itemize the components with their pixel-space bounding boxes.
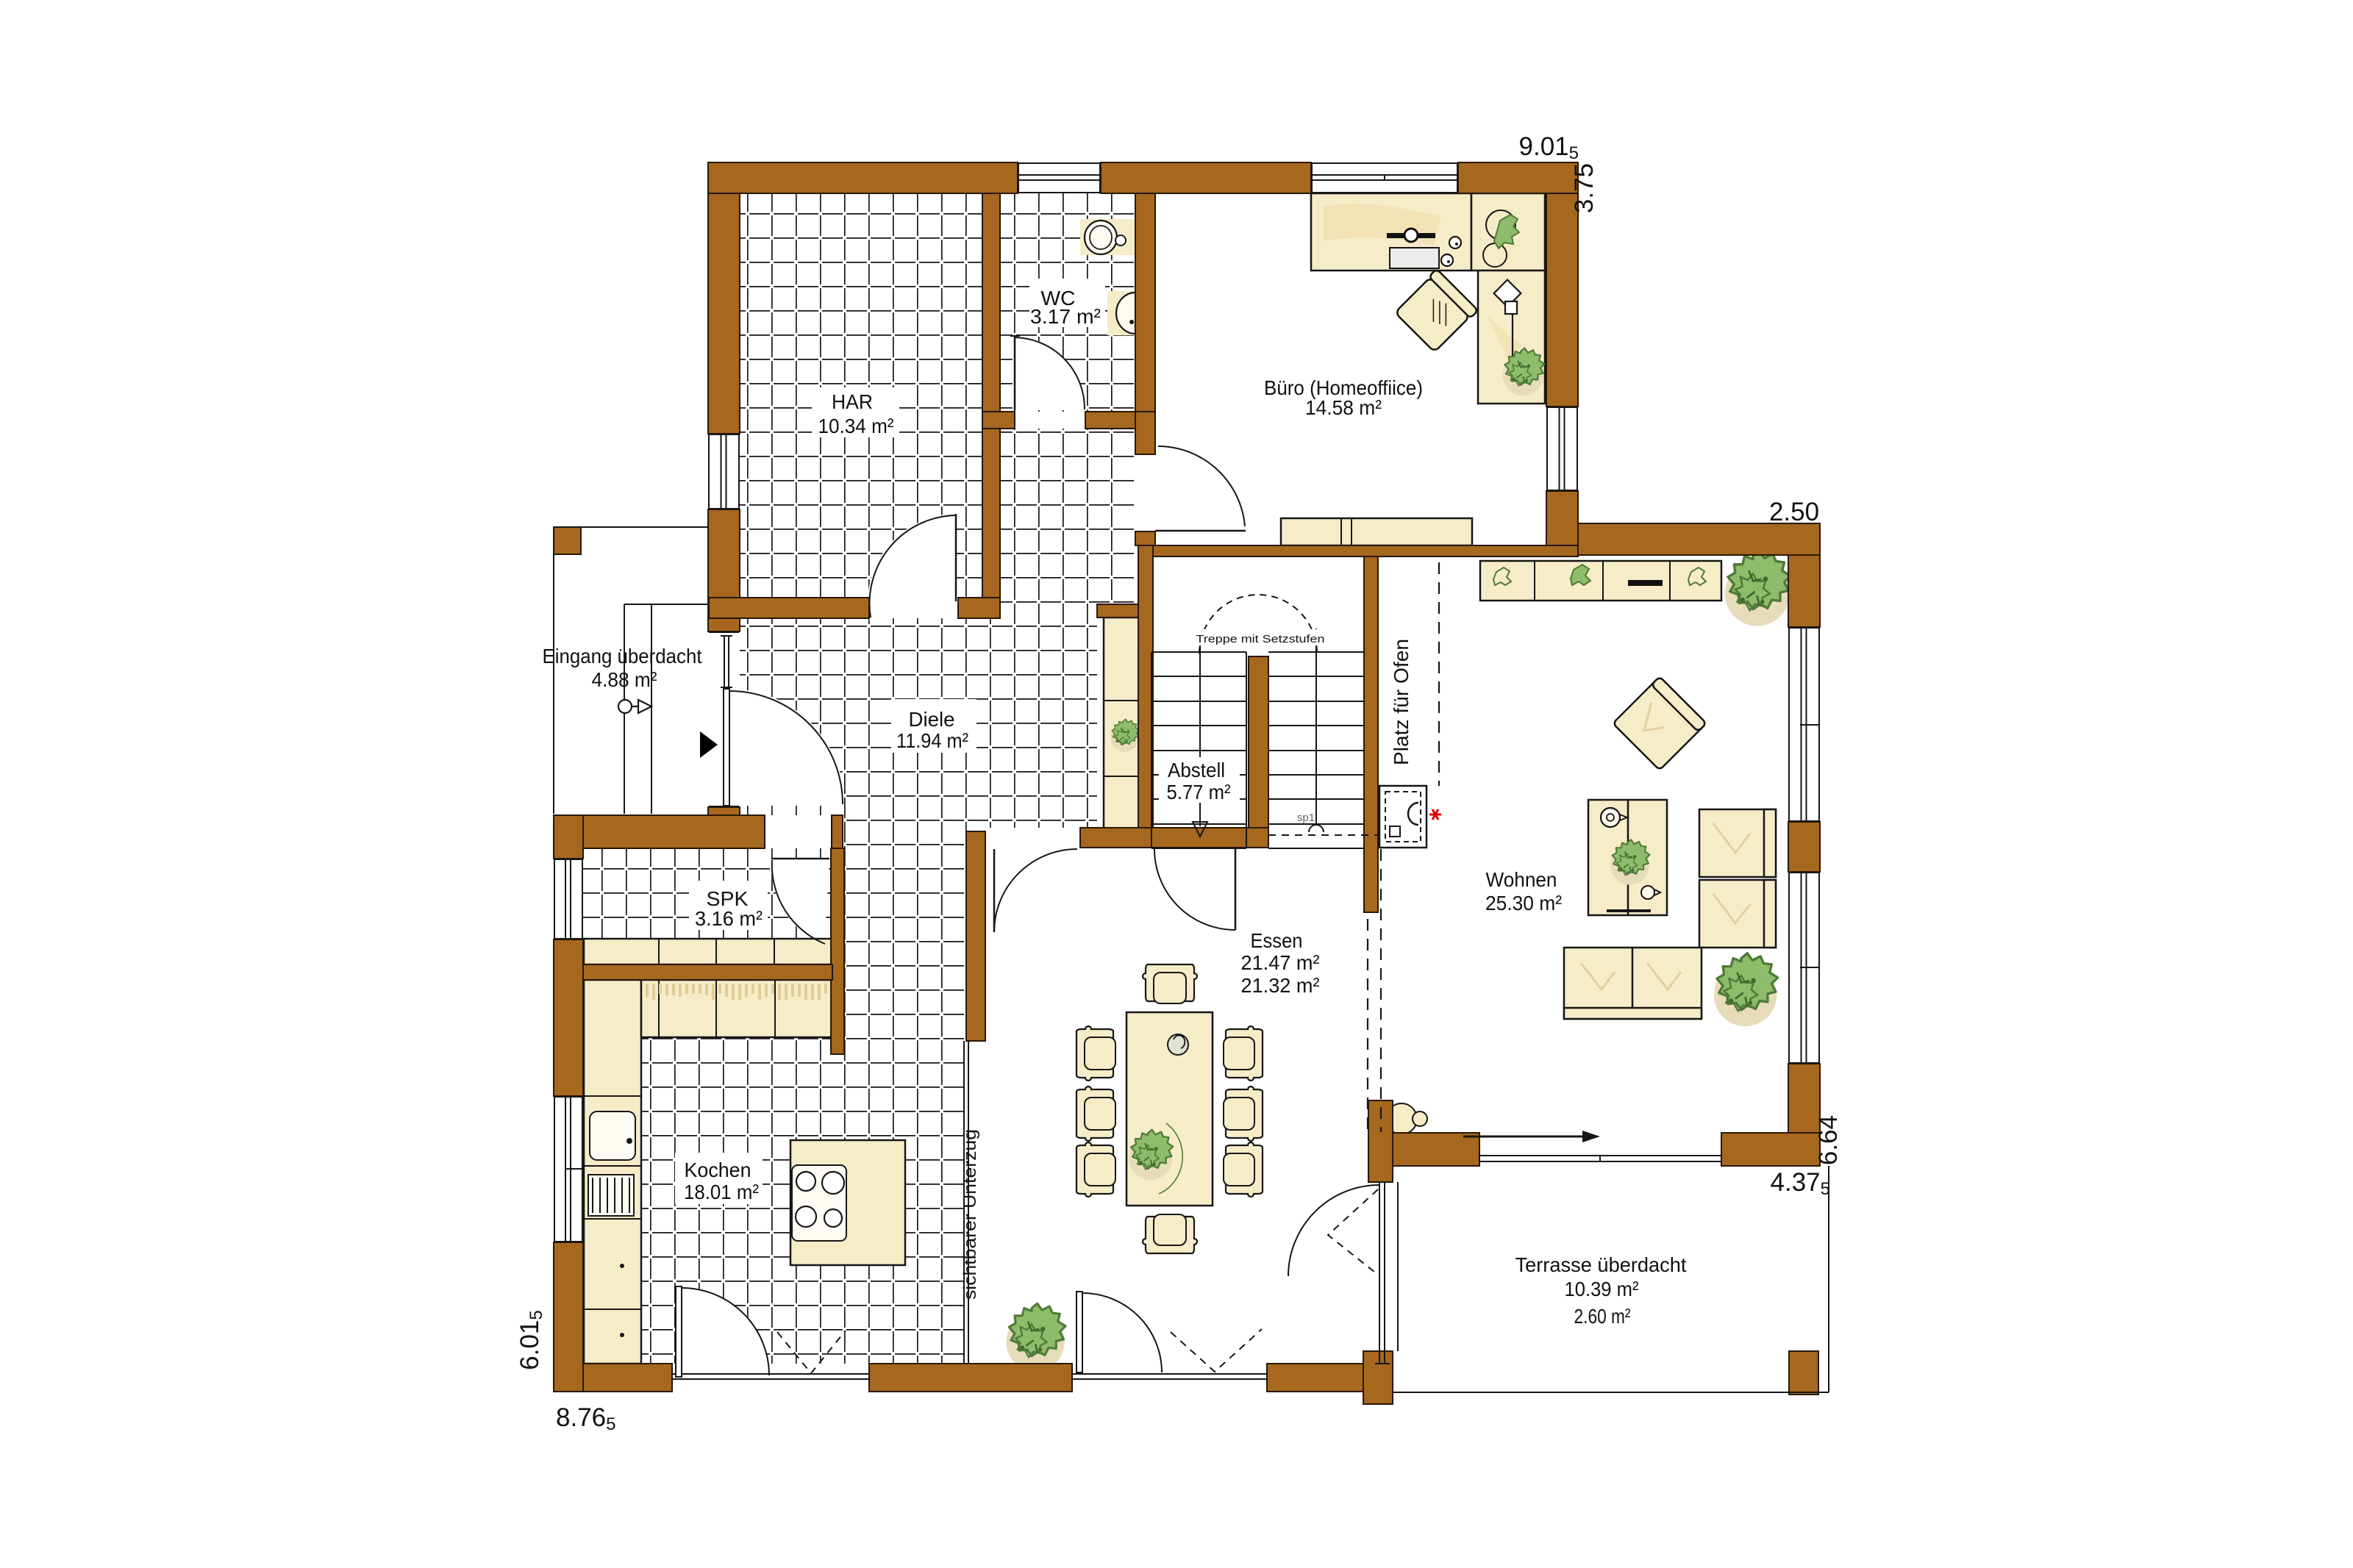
svg-text:10.34 m²: 10.34 m² (818, 415, 894, 437)
svg-text:3.16 m²: 3.16 m² (695, 907, 763, 930)
svg-text:Essen: Essen (1251, 929, 1303, 952)
svg-text:Eingang überdacht: Eingang überdacht (543, 645, 702, 667)
svg-text:Platz für Ofen: Platz für Ofen (1390, 639, 1413, 765)
svg-text:21.32 m²: 21.32 m² (1241, 974, 1320, 997)
svg-text:10.39 m²: 10.39 m² (1565, 1278, 1639, 1300)
svg-text:18.01 m²: 18.01 m² (684, 1181, 759, 1203)
svg-text:Abstell: Abstell (1168, 759, 1225, 781)
svg-text:2.60 m²: 2.60 m² (1574, 1305, 1631, 1328)
svg-text:6.64: 6.64 (1814, 1115, 1843, 1165)
svg-text:2.50: 2.50 (1769, 498, 1819, 526)
svg-text:Diele: Diele (909, 708, 955, 731)
svg-text:5.77 m²: 5.77 m² (1167, 781, 1231, 803)
svg-text:3.17 m²: 3.17 m² (1030, 305, 1101, 328)
svg-text:3.75: 3.75 (1570, 163, 1599, 213)
svg-text:Wohnen: Wohnen (1486, 868, 1557, 891)
svg-text:HAR: HAR (832, 390, 873, 413)
svg-text:Treppe mit Setzstufen: Treppe mit Setzstufen (1196, 633, 1325, 645)
svg-text:21.47 m²: 21.47 m² (1241, 951, 1320, 974)
svg-text:sp1: sp1 (1297, 812, 1315, 824)
svg-text:14.58 m²: 14.58 m² (1305, 396, 1382, 419)
svg-text:11.94 m²: 11.94 m² (896, 729, 968, 752)
svg-text:4.88 m²: 4.88 m² (592, 668, 657, 691)
svg-text:Terrasse überdacht: Terrasse überdacht (1515, 1253, 1687, 1276)
svg-text:sichtbarer Unterzug: sichtbarer Unterzug (960, 1129, 980, 1300)
svg-text:Kochen: Kochen (685, 1159, 751, 1181)
svg-text:25.30 m²: 25.30 m² (1485, 892, 1562, 914)
